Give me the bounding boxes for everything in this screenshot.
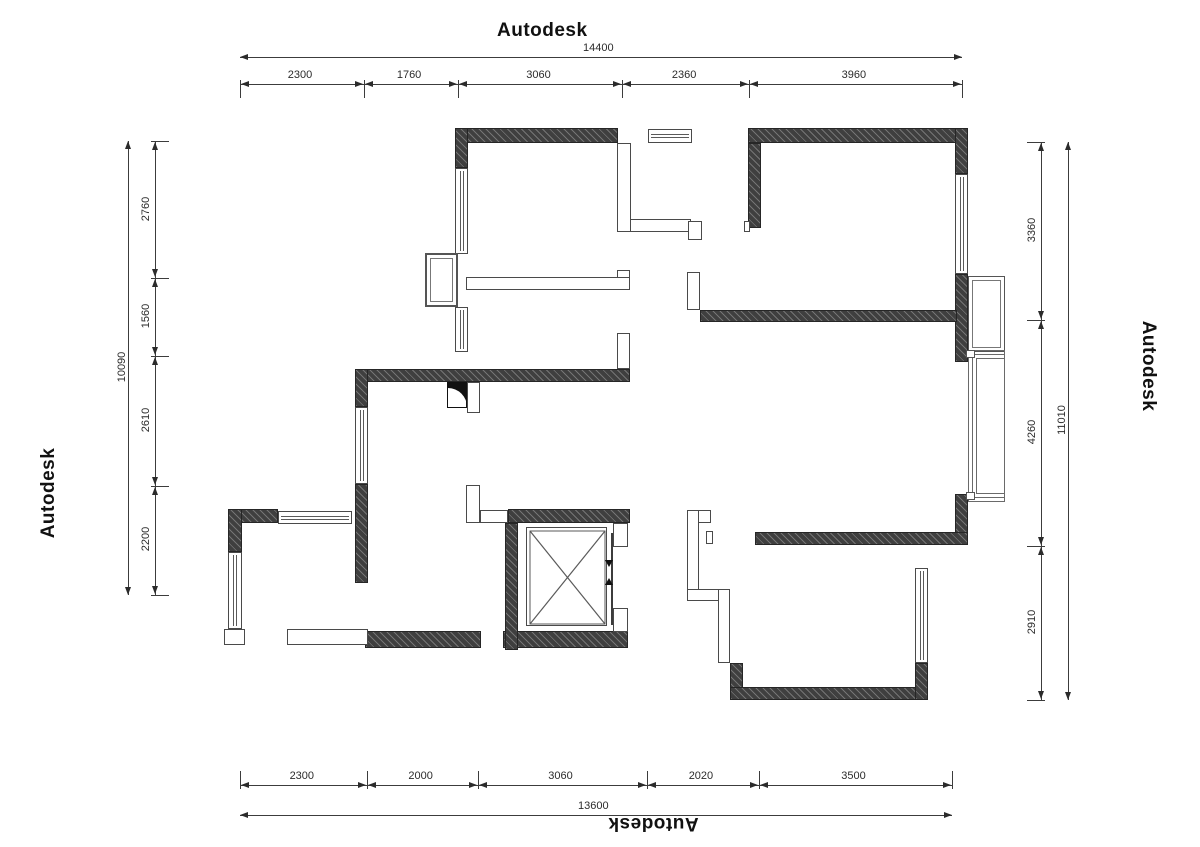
dim-arrow — [1065, 142, 1071, 150]
dim-arrow — [638, 782, 646, 788]
dim-arrow — [152, 487, 158, 495]
dim-arrow — [1038, 537, 1044, 545]
partition-wall — [617, 333, 630, 369]
dim-total-label: 11010 — [1056, 400, 1068, 440]
wall — [748, 128, 968, 143]
dim-label: 2300 — [288, 69, 312, 81]
dim-arrow — [943, 782, 951, 788]
flue-box-inner — [430, 258, 453, 302]
dim-arrow — [152, 142, 158, 150]
watermark-autodesk-top: Autodesk — [497, 20, 588, 42]
dim-arrow — [240, 54, 248, 60]
dim-label: 2300 — [290, 770, 314, 782]
dim-segment-line — [155, 141, 156, 595]
dim-arrow — [1038, 691, 1044, 699]
dim-label: 3960 — [842, 69, 866, 81]
partition-wall — [744, 221, 750, 232]
dim-segment-line — [1041, 142, 1042, 700]
window — [455, 307, 468, 352]
dim-arrow — [750, 782, 758, 788]
elevator-shaft — [526, 527, 607, 626]
dim-label: 2910 — [1026, 602, 1038, 642]
dim-arrow — [152, 357, 158, 365]
dim-arrow — [750, 81, 758, 87]
wall — [508, 509, 630, 523]
dim-label: 1760 — [397, 69, 421, 81]
dim-label: 3060 — [526, 69, 550, 81]
window-glazing — [651, 134, 689, 138]
dim-arrow — [740, 81, 748, 87]
window-glazing — [460, 310, 464, 349]
dim-arrow — [355, 81, 363, 87]
bay-window-line — [976, 358, 1005, 494]
dim-arrow — [358, 782, 366, 788]
dim-arrow — [125, 587, 131, 595]
dim-label: 3500 — [841, 770, 865, 782]
dim-arrow — [954, 54, 962, 60]
dim-witness-line — [952, 771, 953, 789]
dim-total-line — [240, 815, 952, 816]
dim-arrow — [944, 812, 952, 818]
window — [228, 552, 242, 629]
partition-wall — [617, 143, 631, 232]
dim-arrow — [623, 81, 631, 87]
flue-box — [425, 253, 458, 307]
dim-label: 2020 — [689, 770, 713, 782]
door-swing-icon — [447, 382, 467, 408]
dim-arrow — [152, 269, 158, 277]
dim-arrow — [368, 782, 376, 788]
wall — [730, 687, 928, 700]
dim-arrow — [449, 81, 457, 87]
bay-window-corner — [966, 350, 975, 358]
dim-arrow — [152, 347, 158, 355]
window-glazing — [460, 171, 464, 251]
partition-wall — [630, 219, 691, 232]
dim-witness-line — [1027, 700, 1045, 701]
dim-arrow — [479, 782, 487, 788]
bay-window-upper-inner — [972, 280, 1001, 348]
partition-wall — [480, 510, 508, 523]
window-glazing — [233, 555, 237, 626]
dim-label: 2200 — [140, 519, 152, 559]
dim-total-label: 14400 — [583, 42, 614, 54]
dim-arrow — [459, 81, 467, 87]
window — [915, 568, 928, 663]
wall — [700, 310, 957, 322]
window-glazing — [281, 516, 349, 520]
wall — [365, 631, 481, 648]
dim-arrow — [240, 812, 248, 818]
dim-arrow — [760, 782, 768, 788]
window — [955, 174, 968, 274]
dim-label: 3360 — [1026, 210, 1038, 250]
dim-arrow — [1038, 311, 1044, 319]
dim-arrow — [1038, 547, 1044, 555]
dim-total-line — [1068, 142, 1069, 700]
dim-witness-line — [151, 595, 169, 596]
partition-wall — [718, 589, 730, 663]
wall — [355, 484, 368, 583]
watermark-autodesk-left: Autodesk — [38, 438, 60, 548]
floorplan-canvas: Autodesk Autodesk Autodesk Autodesk 1440… — [0, 0, 1200, 847]
dim-label: 2610 — [140, 400, 152, 440]
window — [648, 129, 692, 143]
dim-arrow — [241, 81, 249, 87]
dim-arrow — [365, 81, 373, 87]
dim-arrow — [953, 81, 961, 87]
partition-wall — [466, 485, 480, 523]
door-swing-arc — [447, 388, 467, 408]
dim-total-label: 13600 — [578, 800, 609, 812]
partition-wall — [687, 510, 699, 600]
bay-window-upper — [968, 276, 1005, 352]
wall — [358, 369, 630, 382]
wall — [955, 128, 968, 174]
dim-total-label: 10090 — [116, 347, 128, 387]
dim-witness-line — [962, 80, 963, 98]
dim-arrow — [648, 782, 656, 788]
partition-wall — [467, 382, 480, 413]
wall — [505, 523, 518, 650]
dim-segment-line — [240, 785, 952, 786]
wall — [915, 663, 928, 700]
partition-wall — [687, 272, 700, 310]
wall — [455, 128, 468, 168]
dim-arrow — [152, 279, 158, 287]
partition-wall — [613, 523, 628, 547]
window — [278, 511, 352, 524]
wall — [503, 631, 628, 648]
partition-wall — [466, 277, 630, 290]
dim-segment-line — [240, 84, 962, 85]
elevator-x-icon — [527, 528, 608, 627]
dim-total-line — [128, 141, 129, 595]
dim-arrow — [613, 81, 621, 87]
wall — [228, 509, 242, 552]
dim-arrow — [241, 782, 249, 788]
bay-window-corner — [966, 492, 975, 500]
elevator-door-arrow-down — [605, 560, 613, 567]
dim-arrow — [1038, 143, 1044, 151]
wall — [748, 143, 761, 228]
partition-wall — [287, 629, 368, 645]
partition-wall — [617, 270, 630, 278]
dim-arrow — [152, 586, 158, 594]
partition-wall — [688, 221, 702, 240]
partition-wall — [224, 629, 245, 645]
dim-label: 4260 — [1026, 412, 1038, 452]
watermark-autodesk-right: Autodesk — [1137, 311, 1159, 421]
window — [455, 168, 468, 254]
dim-arrow — [1065, 692, 1071, 700]
dim-arrow — [1038, 321, 1044, 329]
wall — [355, 369, 368, 407]
dim-arrow — [152, 477, 158, 485]
wall — [455, 128, 618, 143]
window-glazing — [360, 410, 364, 481]
dim-total-line — [240, 57, 962, 58]
window-glazing — [960, 177, 964, 271]
wall — [755, 532, 968, 545]
partition-wall — [613, 608, 628, 632]
dim-label: 2000 — [408, 770, 432, 782]
partition-wall — [706, 531, 713, 544]
dim-arrow — [469, 782, 477, 788]
window-glazing — [920, 571, 924, 660]
dim-label: 1560 — [140, 296, 152, 336]
dim-label: 3060 — [548, 770, 572, 782]
dim-arrow — [125, 141, 131, 149]
dim-label: 2360 — [672, 69, 696, 81]
window — [355, 407, 368, 484]
elevator-door-arrow-up — [605, 578, 613, 585]
dim-label: 2760 — [140, 189, 152, 229]
